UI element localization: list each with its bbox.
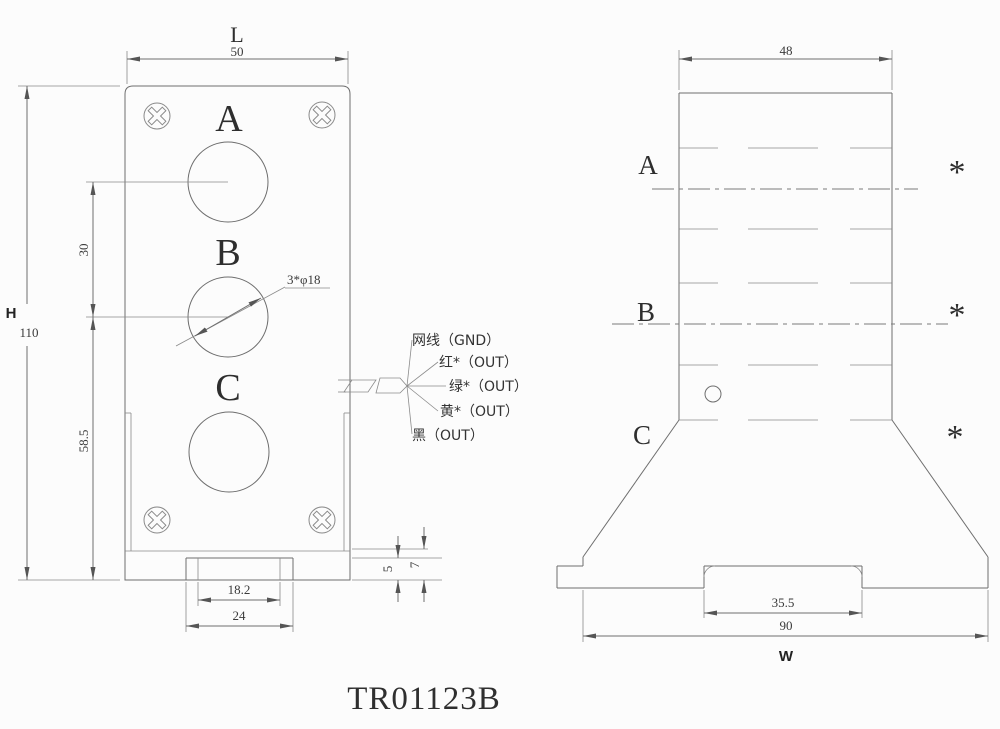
drawing-canvas: A B C L 50 H 110 30 (0, 0, 1000, 729)
front-body-outline (125, 86, 350, 580)
front-base-slot (186, 558, 293, 580)
dim-hole-pitch: 30 (76, 182, 93, 317)
screw-icon (143, 506, 171, 534)
technical-drawing-page: A B C L 50 H 110 30 (0, 0, 1000, 729)
dim-height-letter: H (6, 305, 17, 322)
screws (143, 101, 336, 534)
wire-label-red: 红*（OUT） (439, 355, 518, 371)
dim-height-value: 110 (19, 325, 38, 340)
dim-top-width: 48 (679, 43, 892, 90)
wire-label-yellow: 黄*（OUT） (440, 403, 519, 420)
dim-width-value: 50 (231, 44, 244, 59)
drawing-title: TR01123B (347, 681, 500, 717)
row-a-asterisk: * (949, 154, 966, 191)
row-a-label: A (638, 150, 658, 180)
front-inner-lines (125, 413, 350, 551)
side-base-outline (557, 420, 988, 588)
hole-a-label: A (215, 98, 243, 140)
dim-slot-inner: 18.2 (198, 582, 280, 606)
dim-base-step-value: 5 (380, 566, 395, 573)
dim-slot-outer-value: 24 (233, 608, 247, 623)
hole-c-circle (189, 412, 269, 492)
screw-icon (308, 101, 336, 129)
dim-base-width-letter: W (779, 648, 794, 665)
dim-base-width-value: 90 (780, 618, 793, 633)
row-b-label: B (637, 297, 655, 327)
wire-label-green: 绿*（OUT） (449, 379, 528, 395)
dim-center-to-base: 58.5 (76, 317, 93, 580)
row-c-asterisk: * (947, 419, 964, 456)
side-small-hole (705, 386, 721, 402)
holes-note-leader: 3*φ18 (176, 272, 330, 346)
cable-breakout: 网线（GND） 红*（OUT） 绿*（OUT） 黄*（OUT） 黑（OUT） (338, 333, 528, 444)
dim-hole-pitch-value: 30 (76, 244, 91, 257)
dim-base-thickness-value: 7 (407, 561, 422, 568)
hole-c-label: C (215, 367, 240, 409)
dim-base-heights: 5 7 (352, 527, 442, 602)
side-column-outline (679, 93, 892, 420)
dim-top-width-value: 48 (780, 43, 793, 58)
wire-label-black: 黑（OUT） (412, 428, 484, 444)
dim-slot-width-value: 35.5 (772, 595, 795, 610)
screw-icon (308, 506, 336, 534)
row-b-asterisk: * (949, 297, 966, 334)
holes-note-text: 3*φ18 (287, 272, 321, 287)
hole-b-label: B (215, 232, 240, 274)
dim-width: L 50 (127, 22, 348, 84)
dim-slot-inner-value: 18.2 (228, 582, 251, 597)
dim-slot-width: 35.5 (704, 590, 862, 618)
row-c-label: C (633, 420, 651, 450)
front-view: A B C L 50 H 110 30 (6, 22, 528, 632)
dim-height: H 110 (6, 86, 120, 580)
dim-center-to-base-value: 58.5 (76, 430, 91, 453)
wire-label-gnd: 网线（GND） (412, 333, 500, 349)
screw-icon (143, 102, 171, 130)
side-view: 48 A B C * * * (557, 43, 988, 665)
